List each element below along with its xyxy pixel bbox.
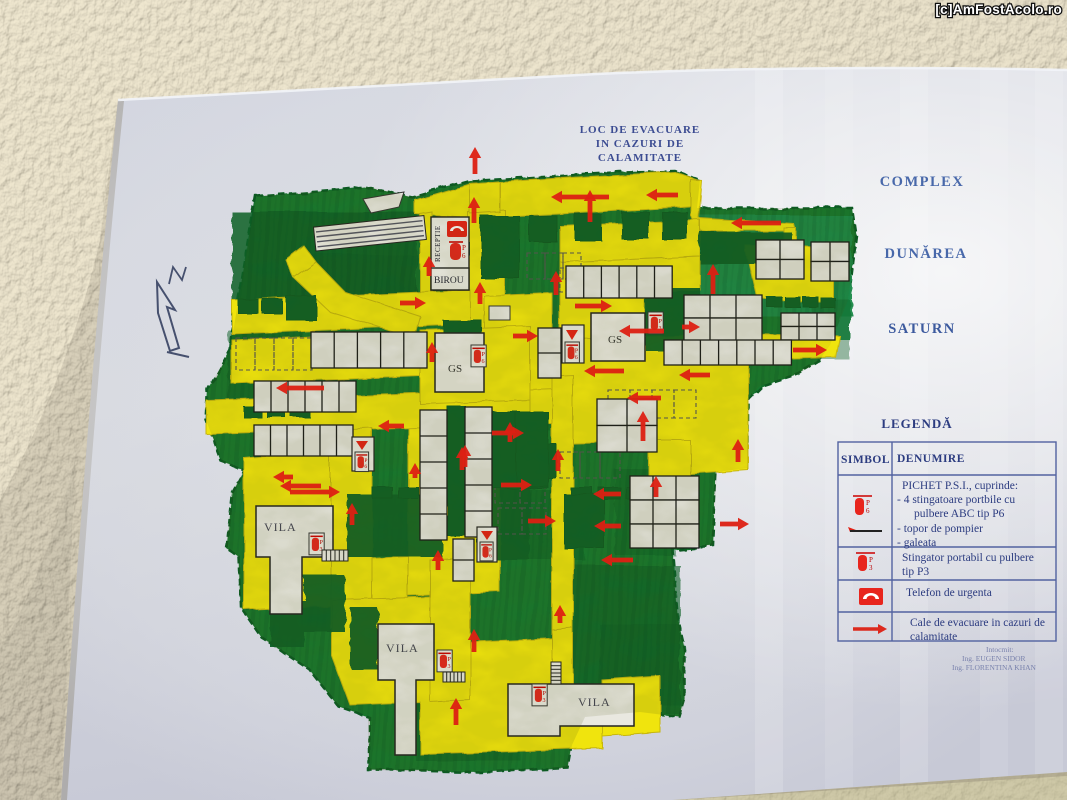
svg-text:SATURN: SATURN [888, 321, 956, 337]
svg-text:Intocmit:: Intocmit: [986, 645, 1014, 654]
svg-text:Ing. FLORENTINA KHAN: Ing. FLORENTINA KHAN [952, 663, 1037, 672]
svg-text:tip P3: tip P3 [902, 566, 929, 578]
svg-text:LOC DE EVACUARE: LOC DE EVACUARE [580, 124, 701, 136]
svg-text:6: 6 [866, 507, 870, 515]
svg-text:Stingator portabil cu pulbere: Stingator portabil cu pulbere [902, 552, 1034, 564]
svg-text:DUNĂREA: DUNĂREA [885, 245, 968, 262]
svg-text:- galeata: - galeata [897, 537, 936, 549]
svg-text:- 4 stingatoare portbile cu: - 4 stingatoare portbile cu [897, 494, 1015, 506]
svg-text:CALAMITATE: CALAMITATE [598, 152, 682, 164]
svg-text:COMPLEX: COMPLEX [880, 174, 965, 190]
svg-text:Cale de evacuare in cazuri de: Cale de evacuare in cazuri de [910, 617, 1045, 629]
svg-text:pulbere ABC tip P6: pulbere ABC tip P6 [914, 508, 1005, 520]
svg-text:SIMBOL: SIMBOL [841, 454, 890, 466]
svg-text:IN CAZURI DE: IN CAZURI DE [596, 138, 684, 150]
svg-text:PICHET P.S.I., cuprinde:: PICHET P.S.I., cuprinde: [902, 480, 1018, 492]
svg-text:P: P [866, 499, 870, 507]
svg-text:calamitate: calamitate [910, 631, 957, 643]
svg-text:[c]AmFostAcolo.ro: [c]AmFostAcolo.ro [935, 2, 1062, 17]
svg-text:DENUMIRE: DENUMIRE [897, 453, 965, 465]
svg-text:P: P [869, 556, 873, 564]
svg-text:3: 3 [869, 564, 873, 572]
svg-text:LEGENDĂ: LEGENDĂ [881, 416, 952, 431]
svg-text:Telefon de urgenta: Telefon de urgenta [906, 587, 992, 599]
svg-text:- topor de pompier: - topor de pompier [897, 523, 983, 535]
svg-text:Ing. EUGEN SIDOR: Ing. EUGEN SIDOR [962, 654, 1026, 663]
